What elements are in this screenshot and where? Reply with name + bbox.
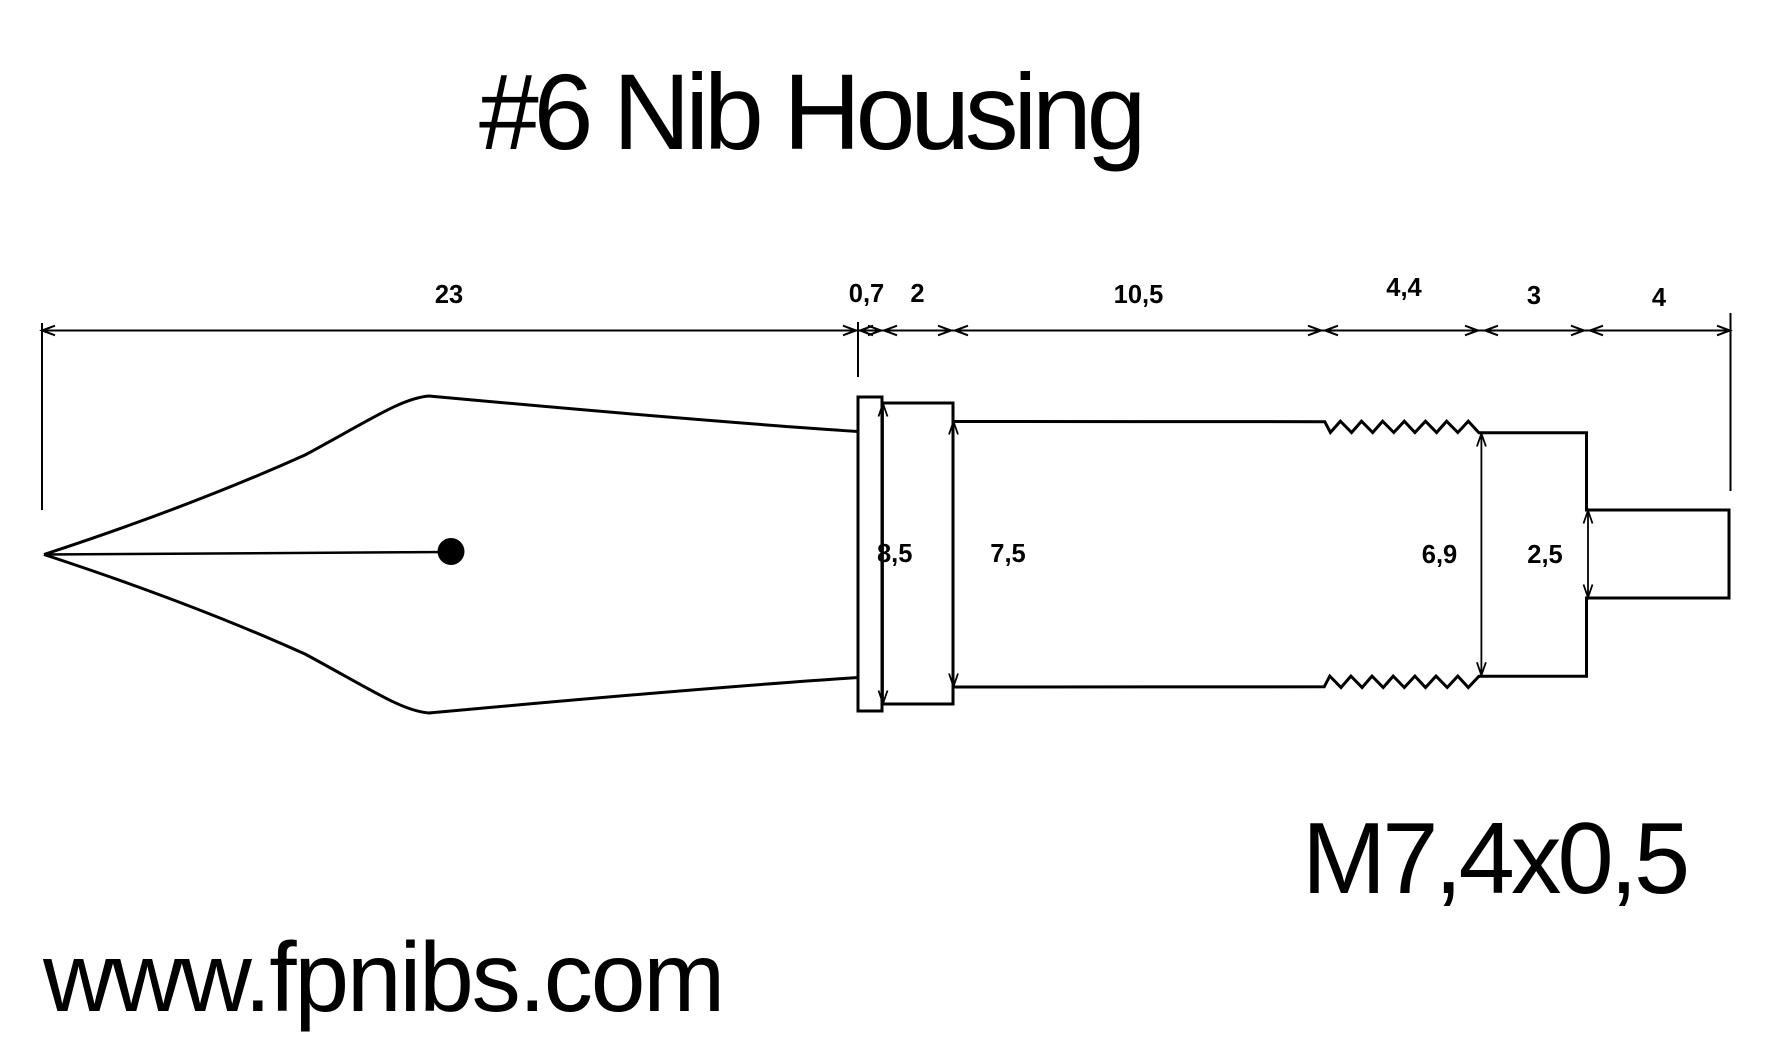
svg-text:23: 23 [435,281,463,309]
svg-text:7,5: 7,5 [990,540,1025,568]
svg-text:4,4: 4,4 [1386,274,1422,302]
svg-text:3: 3 [1527,282,1541,310]
svg-text:#6 Nib Housing: #6 Nib Housing [479,52,1141,172]
svg-text:M7,4x0,5: M7,4x0,5 [1302,803,1686,915]
svg-text:10,5: 10,5 [1114,281,1164,309]
svg-text:2,5: 2,5 [1527,541,1562,569]
svg-text:2: 2 [910,280,924,308]
svg-text:8,5: 8,5 [877,540,912,568]
svg-text:4: 4 [1652,284,1667,312]
svg-text:www.fpnibs.com: www.fpnibs.com [42,922,723,1032]
svg-text:0,7: 0,7 [849,280,884,308]
svg-text:6,9: 6,9 [1422,541,1457,569]
